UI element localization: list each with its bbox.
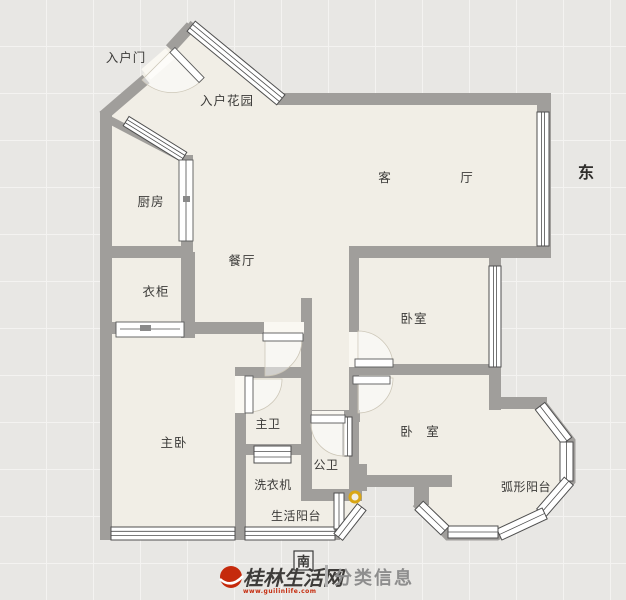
watermark-divider <box>325 565 328 587</box>
wall-living-north <box>277 93 551 105</box>
label-arc-balcony: 弧形阳台 <box>501 479 551 494</box>
wardrobe-sliding-front <box>116 322 184 337</box>
label-living-left: 客 <box>378 170 392 185</box>
label-entry-garden: 入户花园 <box>200 93 254 108</box>
label-kitchen: 厨房 <box>137 194 164 209</box>
label-service-balcony: 生活阳台 <box>271 508 321 523</box>
wall-service-stub <box>355 464 367 491</box>
label-bedroom2-right: 室 <box>426 424 440 439</box>
door-leaf-bedroom1 <box>355 359 393 367</box>
window-service-south <box>245 527 335 540</box>
door-leaf-masterbath <box>245 376 253 413</box>
gold-pipe-marker <box>350 492 360 502</box>
door-leaf-bedroom2 <box>353 376 390 384</box>
floor-plan-image: 入户门 入户花园 厨房 餐厅 客 厅 衣柜 卧室 主卧 主卫 公卫 洗衣机 生活… <box>0 0 626 600</box>
label-washer: 洗衣机 <box>254 477 292 492</box>
window-living-east <box>537 112 549 246</box>
wall-living-south <box>350 246 551 258</box>
window-arc-5 <box>448 526 498 538</box>
label-wardrobe: 衣柜 <box>142 284 169 299</box>
label-bedroom2-left: 卧 <box>400 424 414 439</box>
label-bedroom1: 卧室 <box>400 311 427 326</box>
door-leaf-master <box>263 333 303 341</box>
window-washer-louver <box>254 446 291 463</box>
watermark-site-name: 桂林生活网 <box>243 566 346 590</box>
door-leaf-pubbath <box>311 415 345 423</box>
window-arc-2 <box>560 442 573 481</box>
watermark-site-url: www.guilinlife.com <box>243 588 317 595</box>
label-entry-door: 入户门 <box>106 50 147 65</box>
kitchen-sliding-door <box>179 160 193 241</box>
site-logo-icon <box>220 566 242 588</box>
label-master-bedroom: 主卧 <box>160 435 187 450</box>
floor-plan-svg: 入户门 入户花园 厨房 餐厅 客 厅 衣柜 卧室 主卧 主卫 公卫 洗衣机 生活… <box>0 0 626 600</box>
wall-kitchen-south <box>100 246 192 258</box>
label-master-bath: 主卫 <box>255 417 280 431</box>
compass-east: 东 <box>578 163 594 182</box>
window-master-south <box>111 527 235 540</box>
watermark-section: 分类信息 <box>334 567 414 589</box>
wall-balcony-stub <box>414 485 429 505</box>
label-dining: 餐厅 <box>228 253 255 268</box>
label-living-right: 厅 <box>460 170 474 185</box>
label-public-bath: 公卫 <box>313 458 338 472</box>
window-bedroom1-east <box>489 266 501 367</box>
